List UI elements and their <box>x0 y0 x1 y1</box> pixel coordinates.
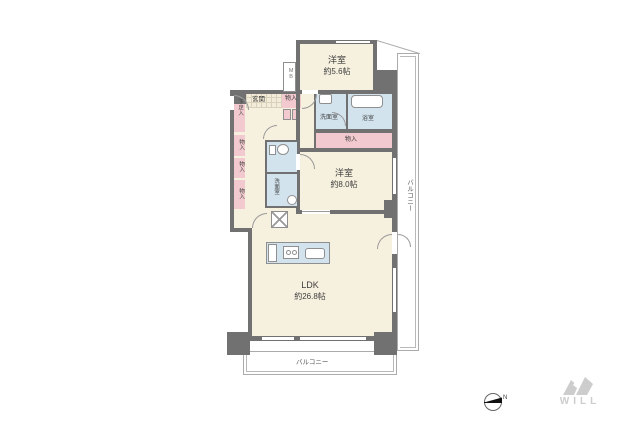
ldk-floor <box>252 214 392 336</box>
bathroom-label: 浴室 <box>362 116 374 124</box>
closet-left-top-label: 物入 <box>237 139 244 150</box>
ldk-label: LDK 約26.8帖 <box>280 280 340 302</box>
compass-north-label: N <box>503 395 507 401</box>
wall-ldk-left <box>248 228 252 337</box>
shoe-box-label: 下足入 <box>236 99 243 116</box>
meter-box-label: MB <box>287 68 294 80</box>
window-ldk-right <box>392 268 397 312</box>
ldk-name: LDK <box>301 280 319 290</box>
washing-machine-icon <box>319 94 332 104</box>
will-logo-mark <box>562 376 598 396</box>
meter-box: MB <box>283 62 296 92</box>
balcony-right: バルコニー <box>397 53 419 351</box>
bedroom2-name: 洋室 <box>335 168 353 178</box>
wall-toilet-powder-divider <box>266 172 298 174</box>
washroom-label: 洗面室 <box>320 115 338 123</box>
stove-burner-right <box>292 250 297 255</box>
wall-bedroom1-right <box>373 40 377 74</box>
wall-bedroom1-left <box>296 40 300 92</box>
bedroom1-label: 洋室 約5.6帖 <box>307 55 367 77</box>
toilet-bowl-icon <box>277 144 289 155</box>
stove-icon <box>283 246 299 259</box>
closet-hall-label: 物入 <box>345 137 357 145</box>
kitchen-sink-icon <box>305 248 325 259</box>
will-logo-text: WILL <box>550 396 610 407</box>
sliding-door-line <box>302 211 330 212</box>
window-bedroom1-top <box>336 40 370 44</box>
balcony-right-label: バルコニー <box>404 179 412 212</box>
kitchen-cabinet-icon <box>268 244 277 262</box>
wall-left <box>230 90 234 232</box>
pillar-bottom-left <box>227 332 250 355</box>
wall-wash-bath-divider <box>346 92 348 129</box>
compass-icon: N <box>482 390 510 414</box>
opening-ldk-balcony-door <box>392 232 397 254</box>
window-ldk-bottom-left <box>262 336 294 341</box>
floorplan-canvas: バルコニー バルコニー MB <box>0 0 640 427</box>
ldk-size: 約26.8帖 <box>280 292 340 302</box>
entrance-cabinet-left <box>283 109 291 120</box>
closet-left-mid-label: 物入 <box>237 161 244 172</box>
pillar-mid-right <box>384 200 397 218</box>
balcony-corner-line <box>377 40 420 54</box>
toilet-tank-icon <box>269 145 276 155</box>
closet-left-bottom-label: 物入 <box>237 188 244 199</box>
stove-burner-left <box>286 250 291 255</box>
wall-wet-bottom <box>316 129 394 133</box>
window-ldk-bottom-right <box>300 336 366 341</box>
window-bedroom2-right <box>392 158 397 194</box>
balcony-bottom-label: バルコニー <box>296 359 328 367</box>
pillar-top-right <box>373 70 397 94</box>
closet-entrance-label: 物入 <box>285 96 297 104</box>
shaft-hatch-box <box>271 211 288 228</box>
wall-bedroom2-top <box>298 148 394 152</box>
bedroom2-label: 洋室 約8.0帖 <box>314 168 374 190</box>
bedroom1-size: 約5.6帖 <box>307 67 367 77</box>
bedroom2-size: 約8.0帖 <box>314 180 374 190</box>
bedroom1-name: 洋室 <box>328 55 346 65</box>
bathtub-icon <box>351 95 383 108</box>
powder-room-label: 洗面室 <box>272 178 279 195</box>
entrance-label: 玄関 <box>252 96 265 104</box>
powder-sink-icon <box>287 195 297 205</box>
will-logo: WILL <box>550 376 610 416</box>
